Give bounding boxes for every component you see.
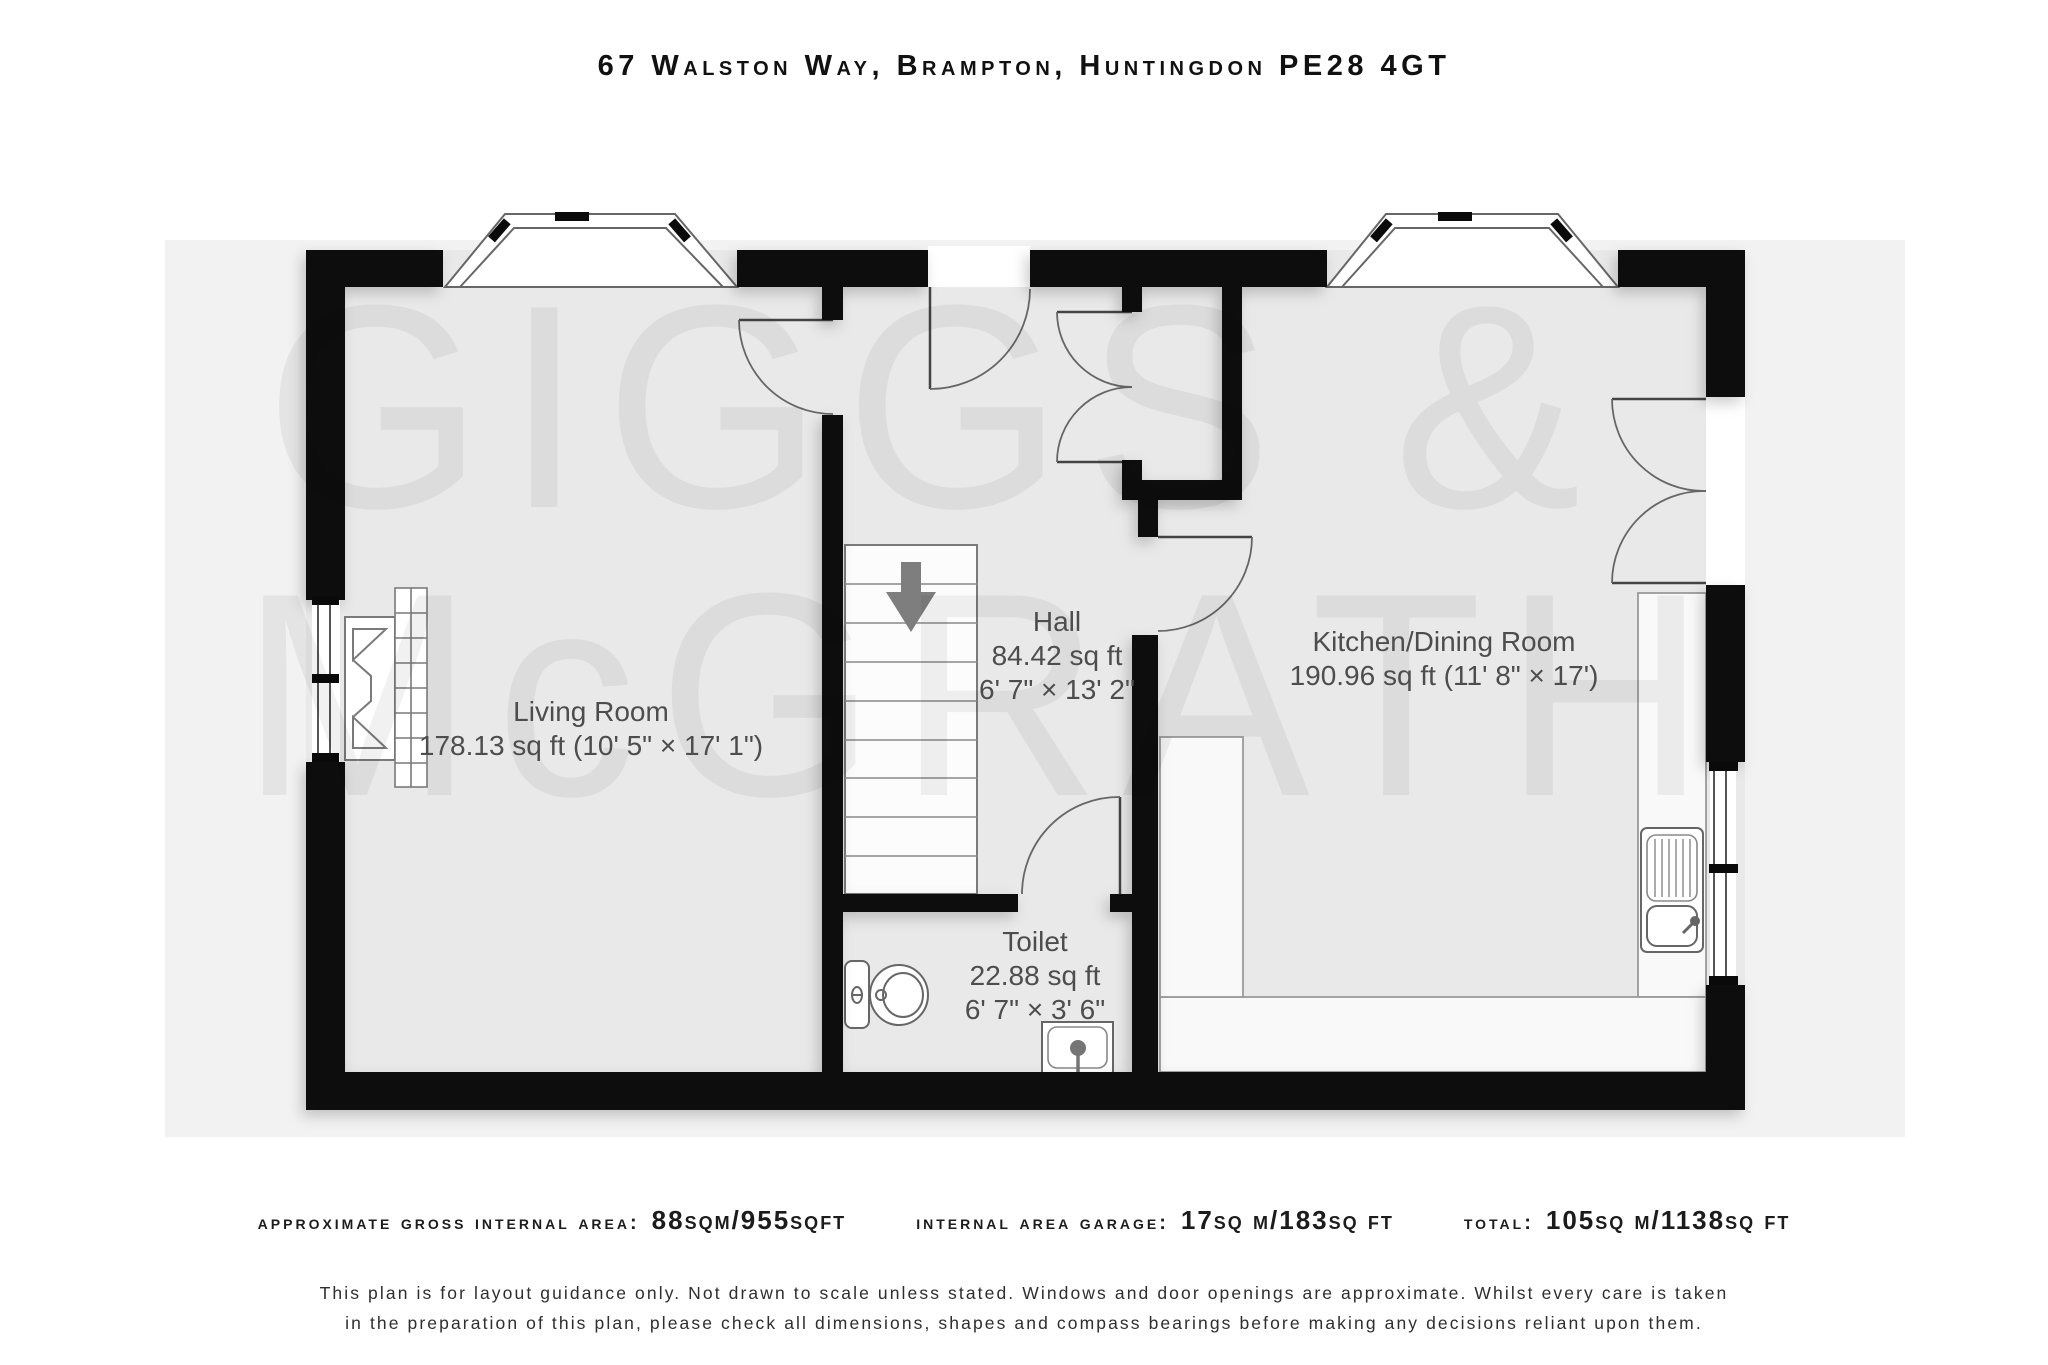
- room-label-living: Living Room 178.13 sq ft (10' 5" × 17' 1…: [419, 695, 763, 763]
- room-label-toilet: Toilet 22.88 sq ft 6' 7" × 3' 6": [965, 925, 1105, 1027]
- disclaimer: This plan is for layout guidance only. N…: [320, 1278, 1729, 1338]
- stat-garage-area: internal area garage: 17sq m/183sq ft: [916, 1205, 1394, 1236]
- stairs-icon: [845, 545, 977, 894]
- disclaimer-line2: in the preparation of this plan, please …: [320, 1308, 1729, 1338]
- front-door-opening: [928, 246, 1030, 287]
- room-dims: 6' 7" × 3' 6": [965, 993, 1105, 1027]
- room-area: 178.13 sq ft (10' 5" × 17' 1"): [419, 729, 763, 763]
- stat-value: 88sqm/955sqft: [652, 1205, 847, 1236]
- fireplace-icon: [345, 617, 395, 760]
- french-door-opening: [1706, 397, 1745, 585]
- room-area: 84.42 sq ft: [979, 639, 1135, 673]
- room-name: Living Room: [419, 695, 763, 729]
- room-label-hall: Hall 84.42 sq ft 6' 7" × 13' 2": [979, 605, 1135, 707]
- room-name: Kitchen/Dining Room: [1290, 625, 1599, 659]
- stat-total-area: total: 105sq m/1138sq ft: [1464, 1205, 1791, 1236]
- bay-window-living: [445, 214, 737, 287]
- stat-label: approximate gross internal area:: [258, 1212, 640, 1235]
- stat-label: internal area garage:: [916, 1212, 1169, 1235]
- window-living-left: [312, 596, 340, 762]
- disclaimer-line1: This plan is for layout guidance only. N…: [320, 1278, 1729, 1308]
- room-name: Hall: [979, 605, 1135, 639]
- room-dims: 6' 7" × 13' 2": [979, 673, 1135, 707]
- kitchen-sink-icon: [1641, 828, 1703, 952]
- room-name: Toilet: [965, 925, 1105, 959]
- bay-window-kitchen: [1327, 214, 1618, 287]
- room-label-kitchen: Kitchen/Dining Room 190.96 sq ft (11' 8"…: [1290, 625, 1599, 693]
- room-area: 190.96 sq ft (11' 8" × 17'): [1290, 659, 1599, 693]
- stat-label: total:: [1464, 1212, 1534, 1235]
- area-stats-bar: approximate gross internal area: 88sqm/9…: [0, 1205, 2048, 1236]
- stat-gross-internal-area: approximate gross internal area: 88sqm/9…: [258, 1205, 847, 1236]
- window-kitchen-right: [1709, 762, 1738, 985]
- stat-value: 17sq m/183sq ft: [1181, 1205, 1394, 1236]
- toilet-wc-icon: [845, 961, 928, 1028]
- room-area: 22.88 sq ft: [965, 959, 1105, 993]
- stat-value: 105sq m/1138sq ft: [1546, 1205, 1790, 1236]
